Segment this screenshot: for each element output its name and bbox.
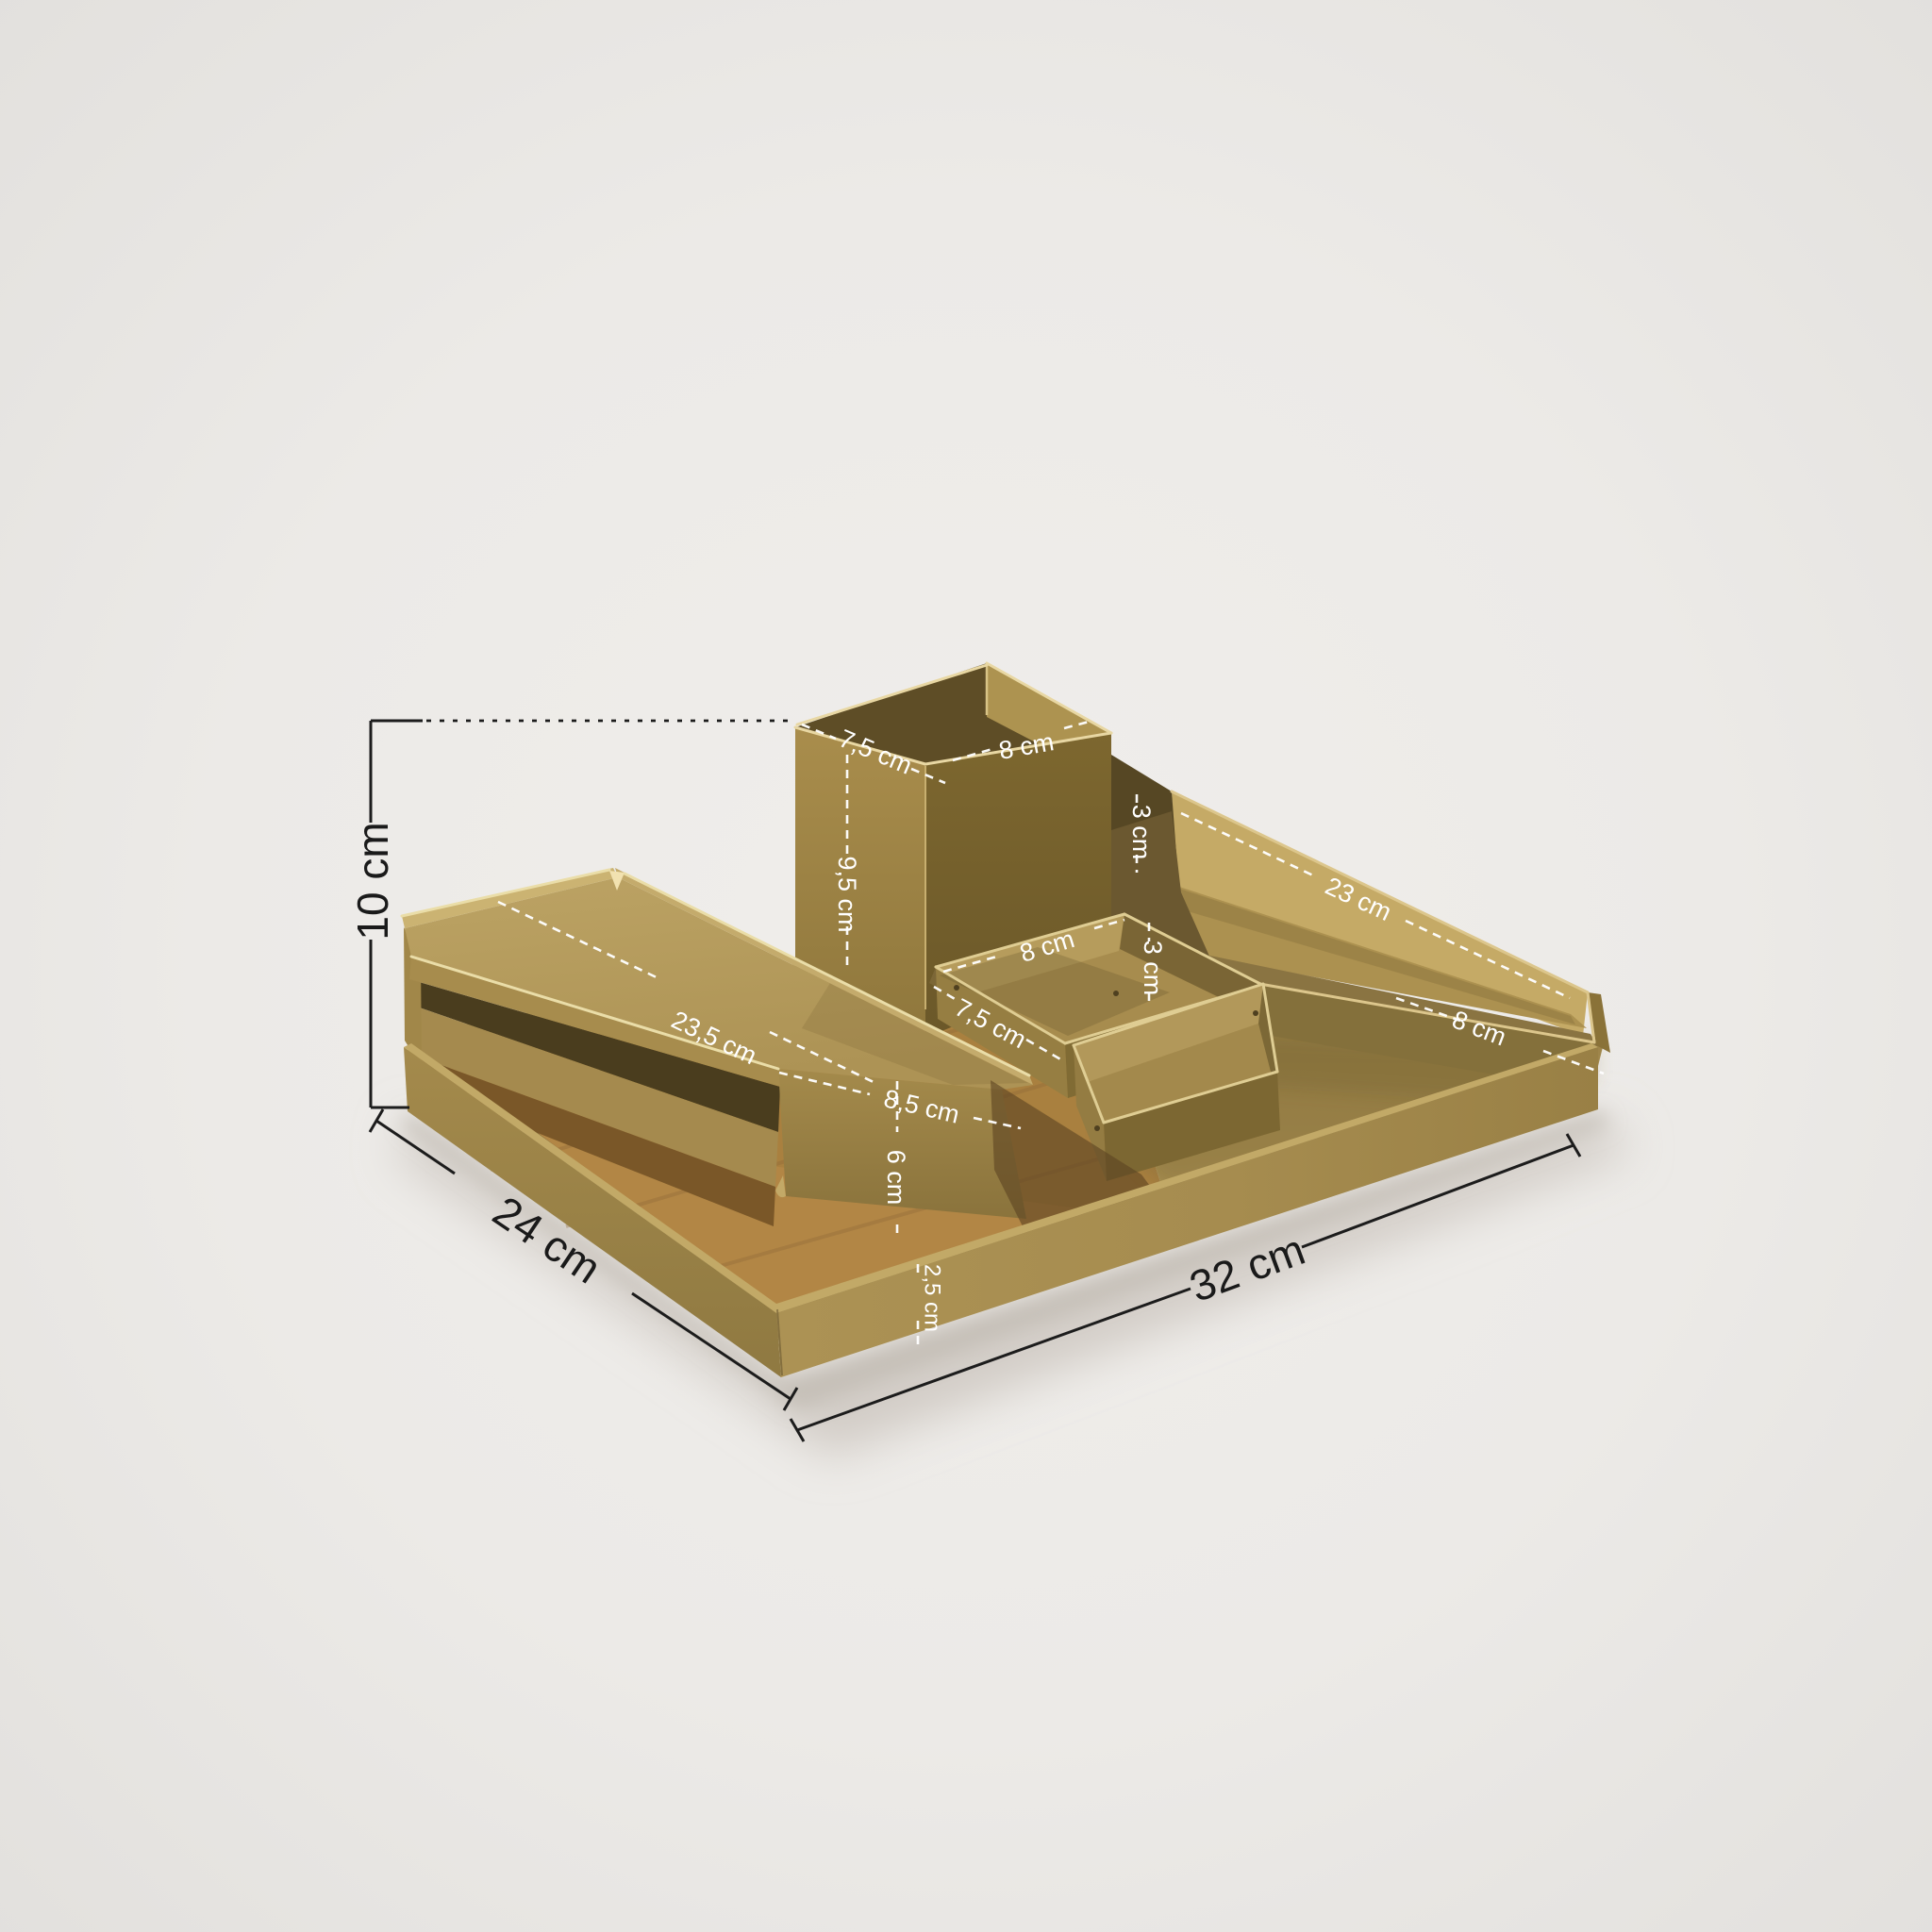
svg-text:6 cm: 6 cm: [882, 1150, 910, 1206]
svg-text:2,5 cm: 2,5 cm: [920, 1264, 945, 1332]
svg-text:9,5 cm: 9,5 cm: [833, 856, 861, 932]
svg-text:3 cm: 3 cm: [1139, 941, 1167, 996]
svg-text:10 cm: 10 cm: [348, 822, 397, 940]
svg-text:3 cm: 3 cm: [1127, 805, 1156, 860]
